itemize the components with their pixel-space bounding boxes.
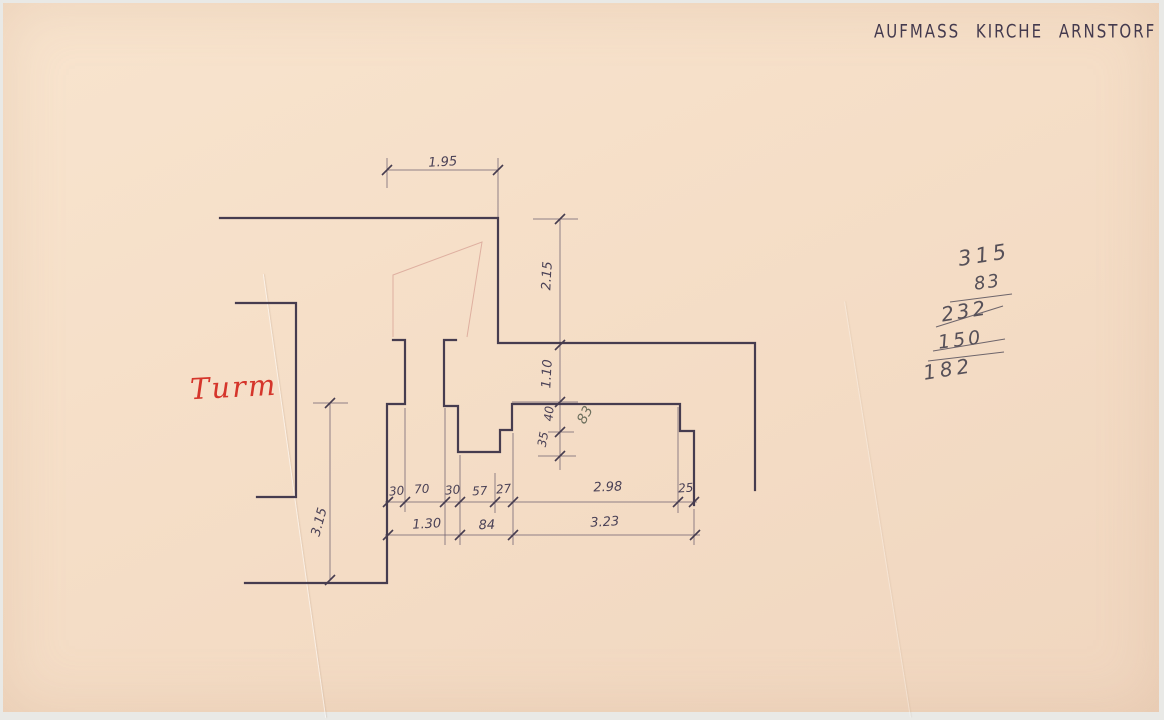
sketch-line xyxy=(393,242,482,337)
dimension-label: 35 xyxy=(535,431,551,448)
wall-line xyxy=(444,340,694,505)
room-label-turm: Turm xyxy=(189,368,278,407)
floor-plan-drawing: 1.952.151.1040358330703057272.98251.3084… xyxy=(0,0,1164,720)
dimension-label: 3.15 xyxy=(309,506,331,538)
dimension-label: 40 xyxy=(541,405,556,422)
dimension-label: 25 xyxy=(678,480,694,495)
dimension-label: 1.10 xyxy=(539,359,555,389)
dimension-label: 1.95 xyxy=(428,154,458,170)
dimension-label: 30 xyxy=(444,482,461,497)
page-title: AUFMASS KIRCHE ARNSTORF xyxy=(874,20,1156,43)
dimension-label: 84 xyxy=(478,518,495,534)
dimension-label: 2.98 xyxy=(593,480,622,496)
dimension-label: 1.30 xyxy=(412,516,442,532)
dimension-label: 27 xyxy=(495,481,512,496)
dimension-label: 57 xyxy=(472,484,488,499)
dimension-label: 2.15 xyxy=(539,261,555,291)
calc-note-line: 83 xyxy=(973,270,1003,295)
dimension-label: 70 xyxy=(414,482,430,497)
wall-line xyxy=(220,218,755,490)
dimension-label: 30 xyxy=(388,483,405,498)
dimension-label: 3.23 xyxy=(590,514,620,530)
dimension-label: 83 xyxy=(574,403,596,426)
